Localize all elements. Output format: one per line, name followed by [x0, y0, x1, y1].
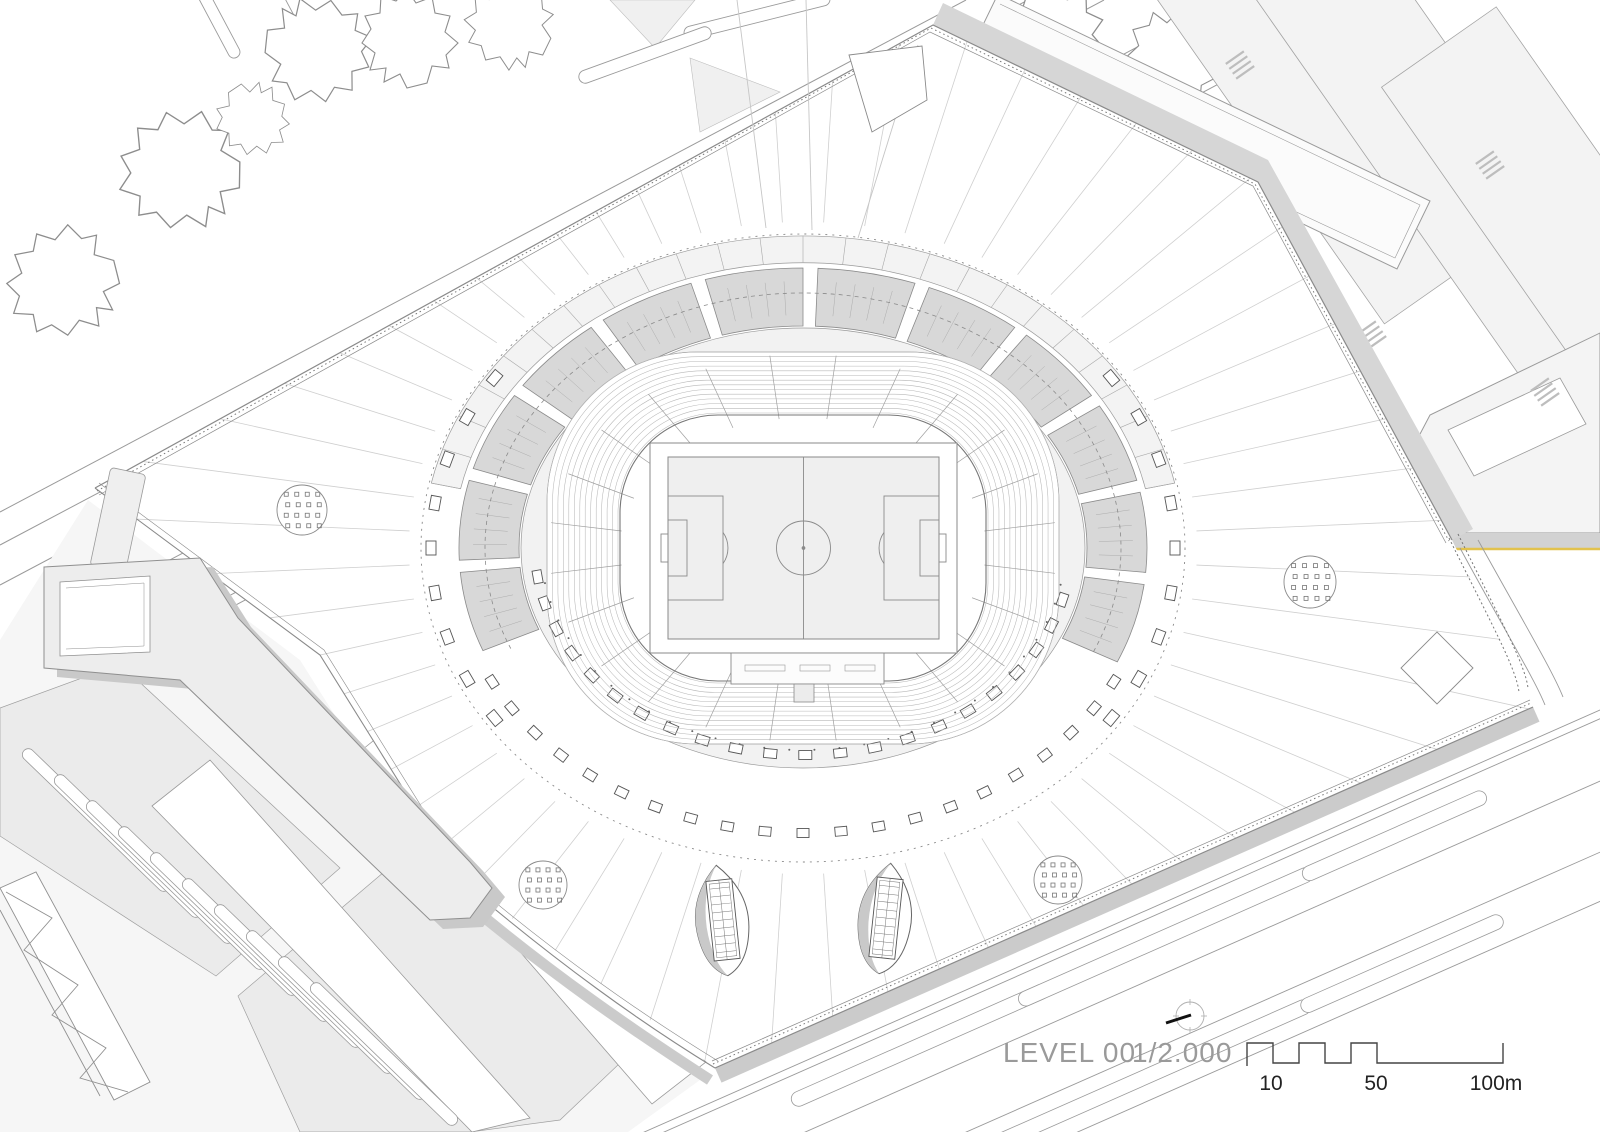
site-plan-canvas: LEVEL 001/2.000 10 50 100m [0, 0, 1600, 1132]
scale-tick-50: 50 [1364, 1072, 1387, 1095]
scale-tick-100m: 100m [1470, 1072, 1523, 1095]
tree-grate-icon [1284, 556, 1336, 608]
drawing-title: LEVEL 001/2.000 [1003, 1037, 1232, 1068]
north-arrow-icon [1166, 999, 1207, 1033]
tree-grate-icon [1034, 856, 1082, 904]
scale-tick-10: 10 [1259, 1072, 1282, 1095]
annotation-block: LEVEL 001/2.000 10 50 100m [1003, 999, 1522, 1095]
scale-bar: 10 50 100m [1247, 1043, 1522, 1095]
floor-plan-drawing: LEVEL 001/2.000 10 50 100m [0, 0, 1600, 1132]
tree-grate-icon [277, 485, 327, 535]
tree-grate-icon [519, 861, 567, 909]
